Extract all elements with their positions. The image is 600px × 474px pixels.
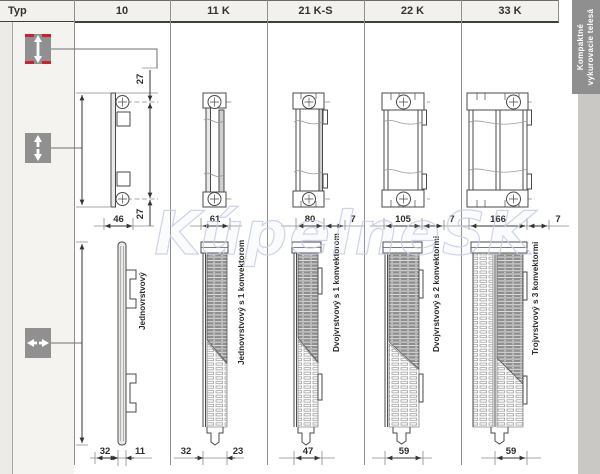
typ-10-drawings: 27 27 46 32 11 Jednovrstvový: [74, 22, 170, 474]
sidebar-label-line1: Kompaktné: [576, 24, 586, 70]
radiator-types-diagram-page: Typ 10 11 K 21 K-S 22 K 33 K: [0, 0, 600, 474]
typ10-front-dim: 32: [100, 446, 111, 457]
typ10-offset-bottom-dim: 27: [135, 209, 146, 220]
typ-22k-profile-view: 59 Dvojvrstvový s 2 konvektormi: [372, 236, 441, 465]
typ33k-depth-dim: 166: [490, 214, 506, 225]
sidebar-label-line2: vykurovacie telesá: [586, 9, 596, 86]
typ21ks-wall-gap-dim: 7: [350, 214, 355, 225]
sidebar-category-label: Kompaktné vykurovacie telesá: [572, 0, 600, 94]
typ33k-wall-gap-dim: 7: [555, 214, 560, 225]
typ-22k-drawings: 105 7 59 Dvojvrstvový s 2 konvektormi: [364, 22, 461, 474]
typ10-layer-label: Jednovrstvový: [138, 272, 147, 330]
typ21ks-layer-label: Dvojvrstvový s 1 konvektorom: [332, 233, 341, 352]
height-icon: [25, 133, 51, 163]
typ-10-profile-view: 32 11 Jednovrstvový: [76, 242, 152, 466]
typ33k-depth-bottom-dim: 59: [506, 446, 517, 457]
typ-33k-profile-view: 59 Trojvrstvový s 3 konvektormi: [471, 242, 541, 465]
typ-11k-profile-view: 32 23 Jednovrstvový s 1 konvektorom: [174, 240, 246, 465]
typ11k-back-dim: 23: [233, 446, 244, 457]
typ-10-section-view: 27 27 46: [76, 68, 158, 230]
typ21ks-depth-dim: 80: [305, 214, 316, 225]
typ11k-layer-label: Jednovrstvový s 1 konvektorom: [237, 240, 246, 365]
typ-21ks-section-view: 80 7: [281, 93, 364, 230]
typ-21ks-drawings: 80 7 47 Dvojvrstvový s 1 konvektorom: [267, 22, 364, 474]
sidebar-category-tab: Kompaktné vykurovacie telesá: [572, 0, 600, 94]
typ-33k-drawings: 166 7 59 Trojvrstvový s 3 konvektormi: [461, 22, 578, 474]
typ11k-front-dim: 32: [181, 446, 192, 457]
typ-11k-section-view: 61: [190, 93, 242, 230]
typ33k-layer-label: Trojvrstvový s 3 konvektormi: [531, 242, 540, 355]
typ22k-depth-dim: 105: [395, 214, 412, 225]
typ21ks-depth-bottom-dim: 47: [303, 446, 314, 457]
typ10-depth-dim: 46: [113, 214, 124, 225]
typ10-back-dim: 11: [135, 446, 146, 457]
typ-33k-section-view: 166 7: [461, 93, 569, 230]
typ22k-depth-bottom-dim: 59: [399, 446, 410, 457]
overall-height-icon: [25, 34, 51, 64]
typ-11k-drawings: 61 32 23 Jednovrstvový s 1 konvektorom: [170, 22, 267, 474]
typ11k-depth-dim: 61: [210, 214, 221, 225]
typ22k-wall-gap-dim: 7: [449, 214, 454, 225]
typ22k-layer-label: Dvojvrstvový s 2 konvektormi: [432, 236, 441, 352]
depth-icon: [25, 328, 51, 358]
typ-22k-section-view: 105 7: [370, 93, 461, 230]
typ10-offset-top-dim: 27: [135, 74, 146, 85]
typ-21ks-profile-view: 47 Dvojvrstvový s 1 konvektorom: [279, 233, 341, 465]
